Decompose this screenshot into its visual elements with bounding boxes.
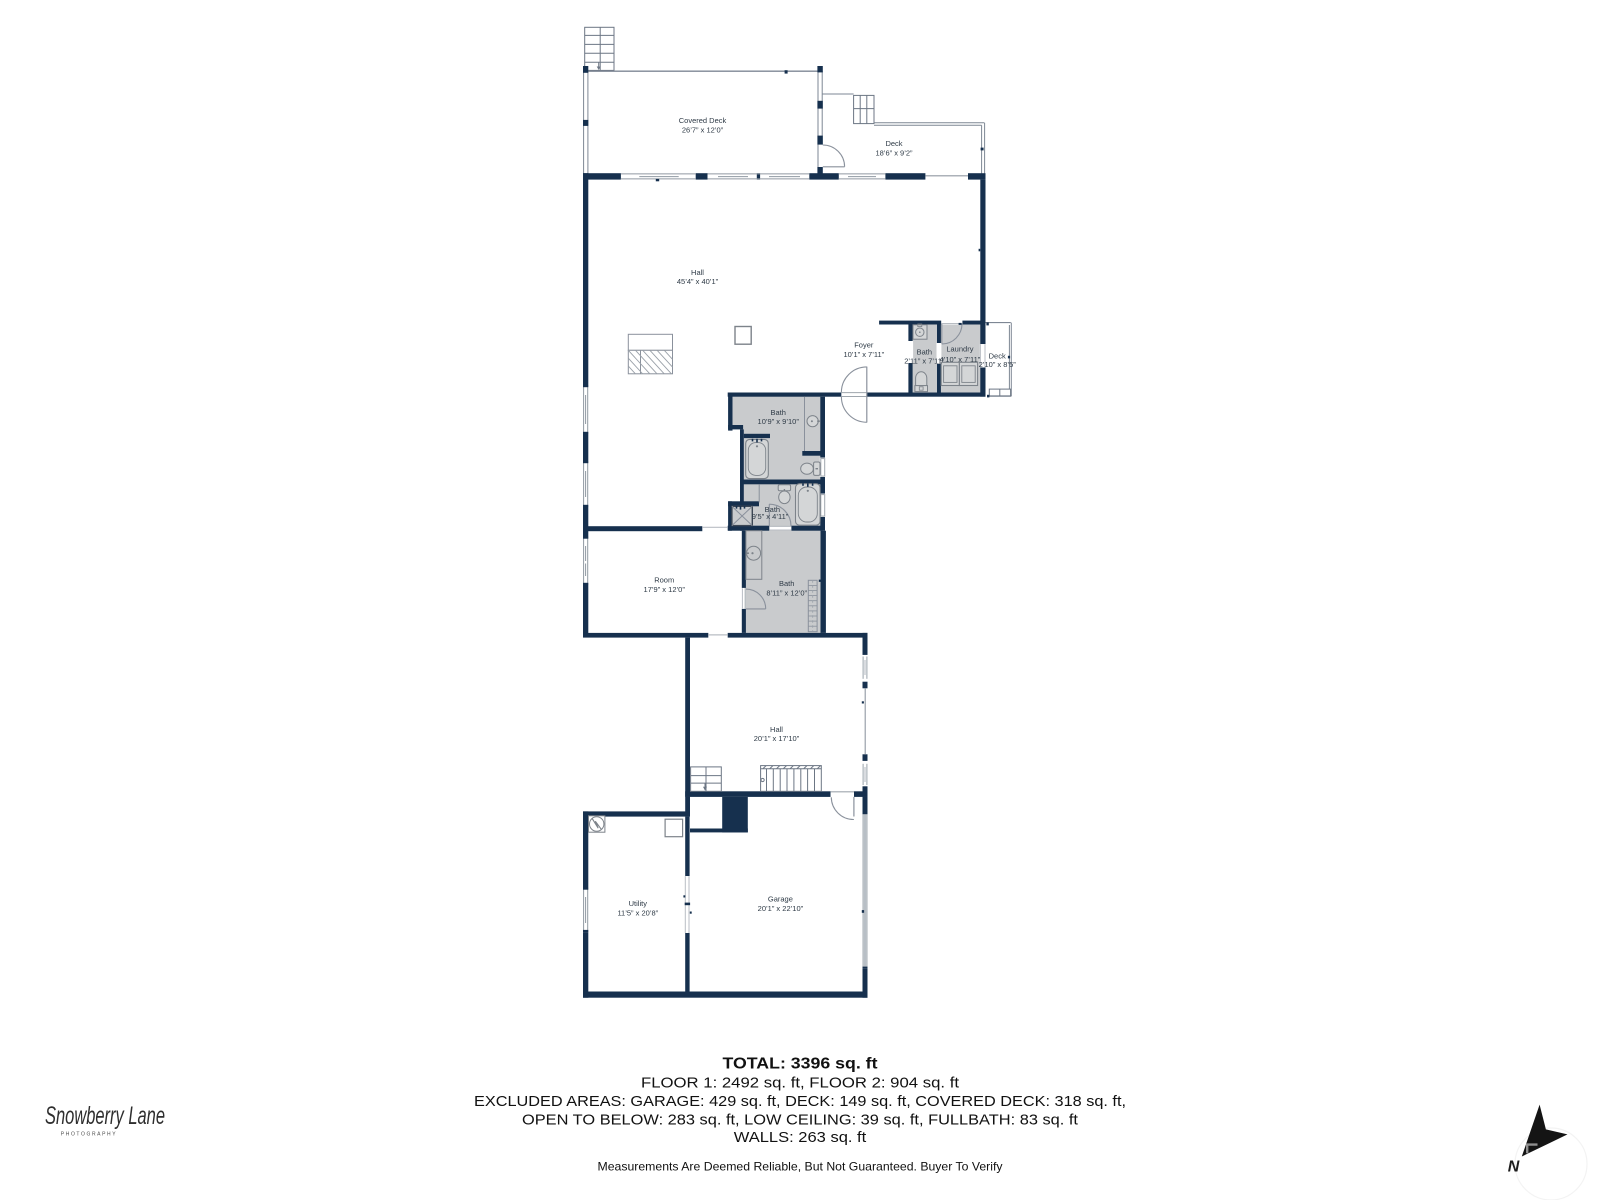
svg-text:8’11” x 12’0”: 8’11” x 12’0” (766, 589, 807, 598)
svg-text:11’5” x 20’8”: 11’5” x 20’8” (617, 908, 658, 917)
svg-text:2’10” x 8’5”: 2’10” x 8’5” (979, 360, 1017, 369)
svg-text:20’1” x 17’10”: 20’1” x 17’10” (754, 734, 800, 743)
svg-text:WALLS: 263 sq. ft: WALLS: 263 sq. ft (734, 1130, 867, 1146)
svg-text:Hall: Hall (691, 268, 704, 277)
svg-text:PHOTOGRAPHY: PHOTOGRAPHY (61, 1132, 117, 1138)
svg-text:18’6” x 9’2”: 18’6” x 9’2” (875, 149, 913, 158)
svg-text:Laundry: Laundry (946, 345, 973, 354)
svg-text:N: N (1508, 1159, 1520, 1176)
svg-text:EXCLUDED AREAS: GARAGE: 429 sq: EXCLUDED AREAS: GARAGE: 429 sq. ft, DECK… (474, 1094, 1126, 1110)
svg-text:Room: Room (654, 576, 674, 585)
svg-text:17’9” x 12’0”: 17’9” x 12’0” (644, 585, 686, 594)
svg-text:Snowberry Lane: Snowberry Lane (45, 1102, 165, 1130)
svg-text:Measurements Are Deemed Reliab: Measurements Are Deemed Reliable, But No… (598, 1160, 1003, 1174)
svg-text:Bath: Bath (770, 408, 785, 417)
svg-text:Garage: Garage (768, 894, 793, 903)
svg-text:Utility: Utility (629, 899, 648, 908)
svg-text:26’7” x 12’0”: 26’7” x 12’0” (682, 126, 724, 135)
svg-text:FLOOR 1: 2492 sq. ft, FLOOR 2:: FLOOR 1: 2492 sq. ft, FLOOR 2: 904 sq. f… (641, 1075, 959, 1091)
svg-text:Covered Deck: Covered Deck (679, 116, 727, 125)
svg-text:4’10” x 7’11”: 4’10” x 7’11” (940, 355, 981, 364)
svg-text:OPEN TO BELOW: 283 sq. ft, LOW: OPEN TO BELOW: 283 sq. ft, LOW CEILING: … (522, 1112, 1078, 1128)
svg-text:Bath: Bath (917, 348, 932, 357)
svg-text:10’9” x 9’10”: 10’9” x 9’10” (758, 417, 800, 426)
svg-text:Foyer: Foyer (854, 340, 874, 349)
svg-text:20’1” x 22’10”: 20’1” x 22’10” (758, 904, 804, 913)
svg-text:10’1” x 7’11”: 10’1” x 7’11” (843, 350, 884, 359)
svg-text:Bath: Bath (779, 579, 794, 588)
svg-text:Hall: Hall (770, 725, 783, 734)
svg-text:9’5” x 4’11”: 9’5” x 4’11” (752, 512, 789, 521)
svg-text:45’4” x 40’1”: 45’4” x 40’1” (677, 277, 719, 286)
svg-text:Deck: Deck (885, 139, 902, 148)
svg-text:TOTAL: 3396 sq. ft: TOTAL: 3396 sq. ft (723, 1055, 878, 1072)
